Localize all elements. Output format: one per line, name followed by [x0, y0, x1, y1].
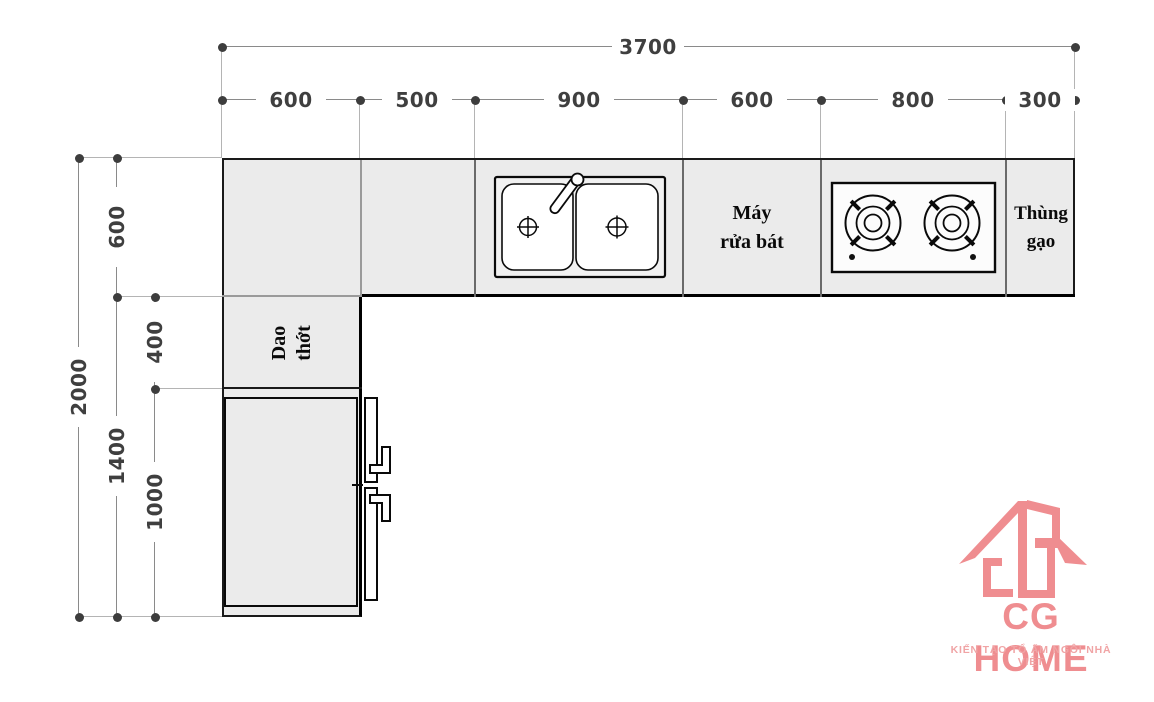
extension-line — [682, 100, 683, 158]
logo-letter-c — [983, 558, 1013, 597]
cabinet-doors — [363, 395, 393, 610]
dim-label-height-1: 600 — [106, 187, 128, 267]
section-divider — [360, 160, 362, 297]
dim-dot — [218, 96, 227, 105]
logo-roof-right — [1056, 535, 1087, 565]
cutting-board-label-line1: Dao — [267, 325, 292, 361]
logo-roof-left — [959, 501, 1018, 564]
cg-home-logo-icon — [953, 492, 1089, 604]
cabinet-door-lower — [365, 488, 377, 600]
kitchen-plan-canvas: Máy rửa bát Thùng gạo Dao thớt 3700 600 … — [0, 0, 1154, 702]
dim-dot — [113, 293, 122, 302]
logo-g-stem — [1018, 501, 1027, 598]
dim-dot — [113, 154, 122, 163]
base-cabinet — [224, 397, 358, 607]
extension-line — [155, 388, 222, 389]
cutting-board-section-line — [222, 387, 362, 389]
counter-section-line — [222, 295, 362, 297]
logo-tagline-text: KIẾN TẠO TỔ ẤM NGÔI NHÀ VIỆT — [936, 644, 1126, 668]
dim-label-segment-3: 900 — [544, 89, 614, 111]
dim-dot — [151, 385, 160, 394]
dim-dot — [679, 96, 688, 105]
extension-line — [474, 100, 475, 158]
extension-line — [820, 100, 821, 158]
dim-dot — [218, 43, 227, 52]
cutting-board-label-line2: thớt — [292, 325, 317, 361]
dim-label-inner-2: 1000 — [144, 462, 166, 542]
stove-knob-left — [849, 254, 855, 260]
extension-line — [117, 296, 222, 297]
dim-label-segment-5: 800 — [878, 89, 948, 111]
dim-label-inner-1: 400 — [144, 302, 166, 382]
extension-line — [359, 100, 360, 158]
door-split-tick — [352, 484, 363, 486]
dim-dot — [75, 613, 84, 622]
dim-dot — [151, 613, 160, 622]
dim-dot — [817, 96, 826, 105]
rice-bin-label-line1: Thùng — [1014, 200, 1068, 228]
logo-g-right-lower — [1027, 548, 1055, 598]
dishwasher-label-line1: Máy — [733, 199, 772, 228]
dim-label-height-2: 1400 — [106, 416, 128, 496]
dim-dot — [75, 154, 84, 163]
dim-label-segment-6: 300 — [1005, 89, 1075, 111]
dim-label-segment-1: 600 — [256, 89, 326, 111]
dim-dot — [151, 293, 160, 302]
rice-bin-label-line2: gạo — [1027, 228, 1056, 256]
double-sink — [490, 172, 670, 282]
dim-dot — [1071, 43, 1080, 52]
cutting-board-label: Dao thớt — [224, 299, 360, 387]
section-divider — [474, 160, 476, 297]
rice-bin-label: Thùng gạo — [1007, 160, 1075, 295]
gas-stove — [826, 178, 1002, 278]
dim-dot — [471, 96, 480, 105]
stove-knob-right — [970, 254, 976, 260]
dim-label-total-height: 2000 — [68, 347, 90, 427]
dim-label-segment-2: 500 — [382, 89, 452, 111]
dishwasher-label: Máy rửa bát — [683, 160, 821, 295]
dim-label-total-width: 3700 — [612, 36, 684, 58]
dim-dot — [356, 96, 365, 105]
dim-label-segment-4: 600 — [717, 89, 787, 111]
extension-line — [79, 157, 222, 158]
dishwasher-label-line2: rửa bát — [720, 228, 784, 257]
dim-dot — [113, 613, 122, 622]
